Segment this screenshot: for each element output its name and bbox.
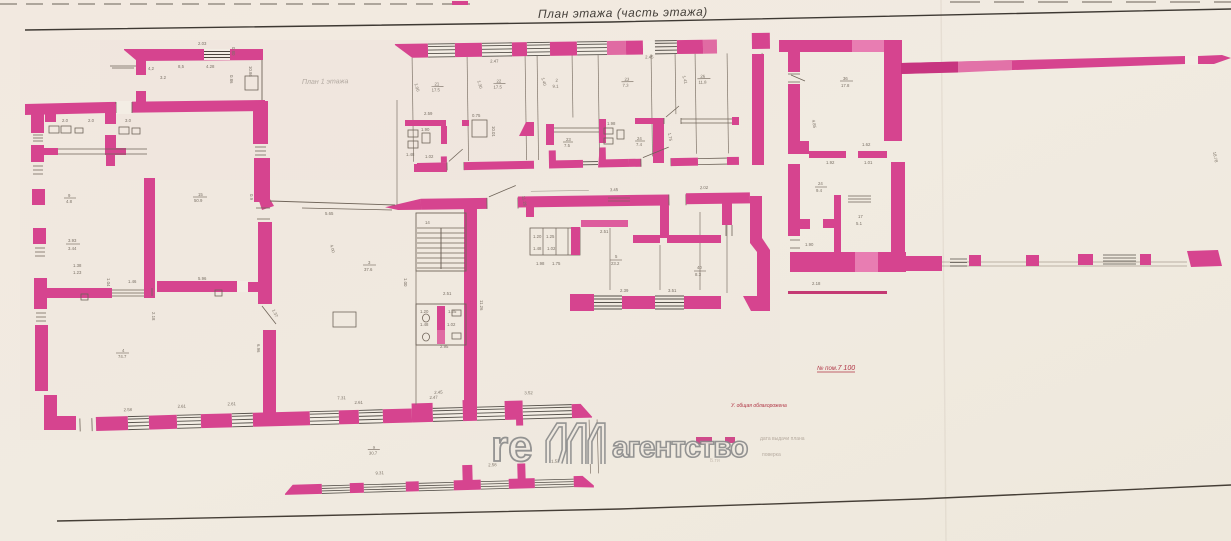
svg-text:2.61: 2.61 — [354, 400, 363, 405]
svg-text:0.9: 0.9 — [249, 194, 254, 201]
svg-text:агентство: агентство — [612, 431, 748, 464]
svg-text:2.39: 2.39 — [620, 288, 629, 293]
svg-text:4.28: 4.28 — [206, 64, 215, 69]
svg-text:2.18: 2.18 — [812, 281, 821, 286]
svg-text:17.5: 17.5 — [493, 85, 502, 90]
svg-text:7.5: 7.5 — [564, 143, 571, 148]
svg-text:1.48: 1.48 — [406, 152, 415, 157]
svg-text:1.90: 1.90 — [805, 242, 814, 247]
svg-text:9.1: 9.1 — [552, 84, 559, 89]
svg-text:24: 24 — [637, 136, 642, 141]
svg-text:40: 40 — [697, 265, 702, 270]
svg-text:1.98: 1.98 — [607, 121, 616, 126]
svg-text:17.8: 17.8 — [841, 83, 850, 88]
svg-text:3.2: 3.2 — [160, 75, 167, 80]
svg-text:дата выдачи плана: дата выдачи плана — [760, 436, 805, 442]
svg-text:36: 36 — [843, 76, 848, 81]
svg-text:2.59: 2.59 — [424, 111, 433, 116]
svg-text:1.62: 1.62 — [862, 142, 871, 147]
svg-text:6.96: 6.96 — [256, 344, 261, 353]
svg-text:1.23: 1.23 — [73, 270, 82, 275]
svg-text:1.92: 1.92 — [826, 160, 835, 165]
svg-text:3.52: 3.52 — [524, 390, 533, 395]
svg-text:23.2: 23.2 — [611, 261, 620, 266]
svg-text:3.45: 3.45 — [610, 187, 619, 192]
svg-text:23: 23 — [624, 77, 629, 82]
svg-text:поверка: поверка — [762, 452, 781, 458]
svg-text:1.00: 1.00 — [403, 278, 408, 287]
svg-text:2.18: 2.18 — [151, 312, 156, 321]
svg-text:0.86: 0.86 — [229, 75, 234, 84]
svg-text:10.86: 10.86 — [248, 66, 253, 77]
svg-text:1.25: 1.25 — [448, 309, 457, 314]
svg-text:1.25: 1.25 — [546, 234, 555, 239]
svg-text:4,2: 4,2 — [148, 66, 155, 71]
svg-text:2.0: 2.0 — [62, 118, 69, 123]
svg-text:У. общая облагорожена: У. общая облагорожена — [731, 403, 787, 409]
svg-text:22: 22 — [496, 79, 501, 84]
svg-text:1.48: 1.48 — [420, 322, 429, 327]
svg-text:14: 14 — [425, 220, 430, 225]
svg-text:7.4: 7.4 — [636, 142, 643, 147]
svg-text:1.98: 1.98 — [536, 261, 545, 266]
svg-text:1.90: 1.90 — [421, 127, 430, 132]
svg-text:5.96: 5.96 — [198, 276, 207, 281]
svg-text:3.44: 3.44 — [68, 246, 77, 251]
svg-text:1.38: 1.38 — [73, 263, 82, 268]
svg-text:3.93: 3.93 — [68, 238, 77, 243]
svg-text:1.02: 1.02 — [547, 246, 556, 251]
svg-text:1.20: 1.20 — [420, 309, 429, 314]
svg-text:2.45: 2.45 — [645, 54, 654, 59]
svg-text:50.9: 50.9 — [194, 198, 203, 203]
svg-text:План 1 этажа: План 1 этажа — [302, 78, 349, 86]
svg-text:11.8: 11.8 — [698, 80, 707, 85]
svg-text:9.4: 9.4 — [816, 188, 823, 193]
svg-text:1.48: 1.48 — [533, 246, 542, 251]
svg-text:1.02: 1.02 — [425, 154, 434, 159]
svg-text:15: 15 — [198, 192, 203, 197]
svg-text:2.61: 2.61 — [227, 401, 236, 406]
svg-text:2.0: 2.0 — [88, 118, 95, 123]
svg-text:1.02: 1.02 — [447, 322, 456, 327]
svg-text:74.7: 74.7 — [118, 354, 127, 359]
svg-text:2.03: 2.03 — [198, 41, 207, 46]
svg-text:23: 23 — [566, 137, 571, 142]
svg-text:3.0: 3.0 — [125, 118, 132, 123]
svg-text:37.6: 37.6 — [364, 267, 373, 272]
svg-text:2.47: 2.47 — [429, 395, 438, 400]
svg-text:2.02: 2.02 — [700, 185, 709, 190]
svg-text:10.01: 10.01 — [491, 126, 496, 137]
svg-text:3.51: 3.51 — [668, 288, 677, 293]
svg-text:17: 17 — [858, 214, 863, 219]
svg-text:1.75: 1.75 — [552, 261, 561, 266]
svg-text:5.1: 5.1 — [856, 221, 863, 226]
svg-text:1.04: 1.04 — [106, 278, 111, 287]
svg-text:21: 21 — [434, 81, 439, 86]
svg-text:1.01: 1.01 — [864, 160, 873, 165]
svg-text:2.51: 2.51 — [443, 291, 452, 296]
svg-text:2.61: 2.61 — [177, 404, 186, 409]
svg-text:7.3: 7.3 — [622, 83, 629, 88]
svg-text:7.31: 7.31 — [337, 395, 346, 400]
svg-text:2.51: 2.51 — [600, 229, 609, 234]
svg-text:0.75: 0.75 — [472, 113, 481, 118]
svg-text:№ пом.7 100: № пом.7 100 — [817, 365, 855, 372]
svg-text:11.26: 11.26 — [479, 300, 484, 311]
svg-text:1.46: 1.46 — [128, 279, 137, 284]
svg-text:2.45: 2.45 — [434, 390, 443, 395]
svg-text:26: 26 — [700, 74, 705, 79]
svg-text:0.80: 0.80 — [231, 47, 236, 56]
svg-text:План этажа (часть этажа): План этажа (часть этажа) — [538, 5, 708, 21]
svg-text:2.58: 2.58 — [124, 407, 133, 412]
svg-text:8,5: 8,5 — [178, 64, 185, 69]
svg-text:30.7: 30.7 — [369, 450, 378, 455]
svg-text:17.5: 17.5 — [432, 87, 441, 92]
svg-text:24: 24 — [818, 181, 823, 186]
svg-text:8.3: 8.3 — [695, 272, 702, 277]
svg-text:re: re — [491, 422, 533, 471]
svg-text:4.8: 4.8 — [66, 199, 73, 204]
svg-text:1.20: 1.20 — [533, 234, 542, 239]
svg-text:2.47: 2.47 — [490, 59, 499, 64]
svg-text:5.65: 5.65 — [325, 211, 334, 216]
svg-text:9.31: 9.31 — [375, 470, 384, 475]
